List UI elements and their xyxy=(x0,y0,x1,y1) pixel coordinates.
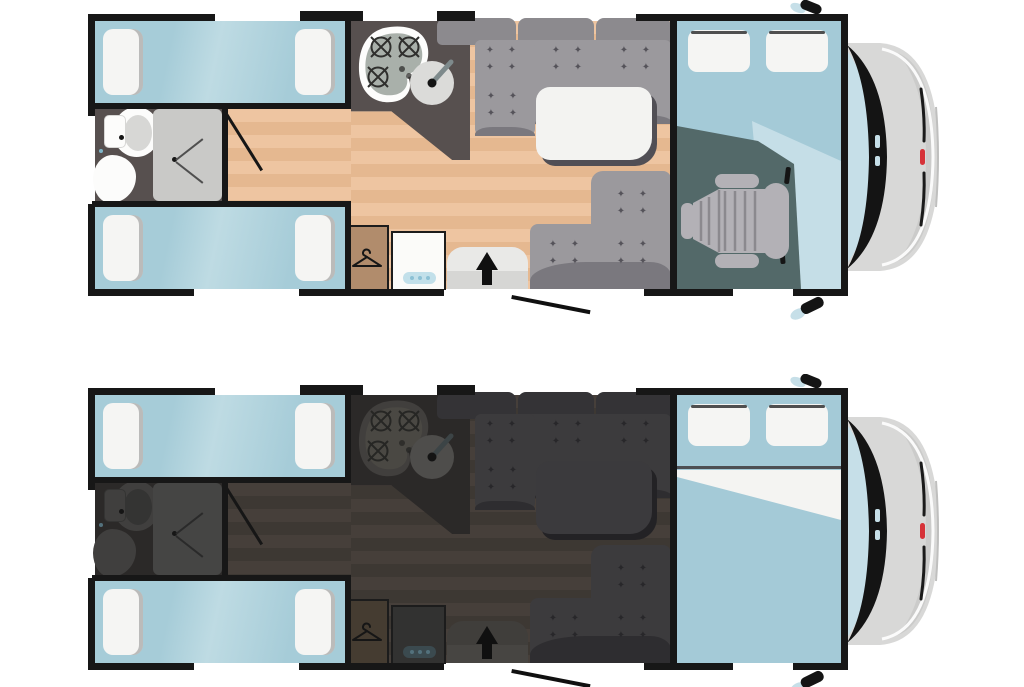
rear-single-bed-bottom xyxy=(95,207,345,289)
pillow xyxy=(103,29,143,95)
bathroom xyxy=(95,483,222,575)
cushion-buttons: ✦✦✦✦ xyxy=(484,90,520,122)
fridge xyxy=(391,231,446,290)
front-badge xyxy=(920,149,925,165)
cushion-buttons: ✦✦✦✦ xyxy=(617,44,653,76)
cushion-buttons: ✦✦✦✦ xyxy=(614,612,650,644)
shower-tray xyxy=(153,109,222,201)
pillow xyxy=(688,30,750,72)
wall-segment xyxy=(88,388,215,395)
hanger-icon xyxy=(350,622,384,644)
front-badge xyxy=(920,523,925,539)
pillow xyxy=(766,404,828,446)
sofa-front-edge xyxy=(475,501,535,510)
wall-segment xyxy=(299,663,444,670)
wall-segment xyxy=(299,289,444,296)
cushion-buttons: ✦✦✦✦ xyxy=(614,188,650,220)
window-gap xyxy=(733,289,793,296)
shower-door-line xyxy=(175,138,203,161)
pillow xyxy=(103,215,143,281)
cushion-buttons: ✦✦✦✦ xyxy=(614,562,650,594)
shower-door-line xyxy=(175,535,203,558)
pillow xyxy=(766,30,828,72)
cab-and-drop-down-bed xyxy=(670,14,848,296)
pillow xyxy=(103,589,143,655)
floorplan-day: ✦✦✦✦ ✦✦✦✦ ✦✦✦✦ ✦✦✦✦ ✦✦✦✦ ✦✦✦✦ ✦✦✦✦ xyxy=(0,0,1024,340)
cushion-buttons: ✦✦✦✦ xyxy=(546,238,582,270)
vehicle-front xyxy=(846,411,946,651)
pillow xyxy=(295,215,335,281)
wall-segment xyxy=(345,16,351,109)
habitation-door-open xyxy=(511,669,590,687)
wall-segment xyxy=(88,14,95,116)
cushion-buttons: ✦✦✦✦ xyxy=(483,418,519,450)
wiper-notch xyxy=(875,156,880,166)
wall-segment xyxy=(222,109,228,206)
cushion-button-icon: ✦ xyxy=(483,418,497,433)
wall-segment xyxy=(88,388,95,490)
rear-single-bed-top xyxy=(95,21,345,103)
pillow xyxy=(295,29,335,95)
basin-drain xyxy=(119,135,124,140)
vehicle-front xyxy=(846,37,946,277)
tap-dot xyxy=(99,523,103,527)
rear-single-bed-bottom xyxy=(95,581,345,663)
wiper-notch xyxy=(875,135,880,148)
toilet-tank xyxy=(104,489,126,522)
wall-segment xyxy=(345,390,351,483)
cushion-buttons: ✦✦✦✦ xyxy=(546,612,582,644)
wall-segment xyxy=(345,201,351,296)
bed-head-divider xyxy=(677,466,841,469)
cab-and-drop-down-bed xyxy=(670,388,848,670)
toilet-seat xyxy=(124,489,152,525)
round-sink-icon xyxy=(406,427,462,483)
habitation-door-open xyxy=(511,295,590,314)
wall-segment xyxy=(300,385,363,395)
corridor-floor xyxy=(228,483,351,575)
tap-dot xyxy=(99,149,103,153)
wall-segment xyxy=(437,385,475,395)
wall-segment xyxy=(300,11,363,21)
cushion-button-icon: ✦ xyxy=(483,44,497,59)
washbasin xyxy=(93,155,136,203)
cushion-buttons: ✦✦✦✦ xyxy=(614,238,650,270)
wing-mirror-icon xyxy=(786,292,828,322)
wall-segment xyxy=(345,575,351,670)
fridge xyxy=(391,605,446,664)
toilet-tank xyxy=(104,115,126,148)
pillow xyxy=(688,404,750,446)
hanger-icon xyxy=(350,248,384,270)
toilet-seat xyxy=(124,115,152,151)
cushion-buttons: ✦✦✦✦ xyxy=(549,44,585,76)
wall-segment xyxy=(88,663,194,670)
dinette-table xyxy=(536,87,652,160)
cushion-buttons: ✦✦✦✦ xyxy=(484,464,520,496)
corridor-floor xyxy=(228,109,351,201)
shower-door-line xyxy=(175,512,203,535)
pillow xyxy=(295,403,335,469)
entry-arrow-icon xyxy=(482,268,492,285)
wall-segment xyxy=(88,14,215,21)
cushion-buttons: ✦✦✦✦ xyxy=(549,418,585,450)
floorplan-night: ✦✦✦✦ ✦✦✦✦ ✦✦✦✦ ✦✦✦✦ ✦✦✦✦ ✦✦✦✦ ✦✦✦✦ xyxy=(0,374,1024,687)
fridge-handle xyxy=(403,272,436,284)
sofa-front-edge xyxy=(475,127,535,136)
pillow xyxy=(103,403,143,469)
wall-segment xyxy=(88,578,95,670)
window-gap xyxy=(733,663,793,670)
shower-tray xyxy=(153,483,222,575)
floorplan-canvas: ✦✦✦✦ ✦✦✦✦ ✦✦✦✦ ✦✦✦✦ ✦✦✦✦ ✦✦✦✦ ✦✦✦✦ xyxy=(0,0,1024,687)
wardrobe xyxy=(345,225,389,290)
basin-drain xyxy=(119,509,124,514)
wiper-notch xyxy=(875,530,880,540)
cushion-buttons: ✦✦✦✦ xyxy=(617,418,653,450)
pillow xyxy=(295,589,335,655)
round-sink-icon xyxy=(406,53,462,109)
dinette-table xyxy=(536,461,652,534)
cab-seat-icon xyxy=(679,173,791,269)
washbasin xyxy=(93,529,136,577)
fridge-handle xyxy=(403,646,436,658)
rear-single-bed-top xyxy=(95,395,345,477)
wall-segment xyxy=(88,289,194,296)
wall-segment xyxy=(437,11,475,21)
entry-arrow-icon xyxy=(482,642,492,659)
wiper-notch xyxy=(875,509,880,522)
wardrobe xyxy=(345,599,389,664)
shower-door-line xyxy=(175,161,203,184)
wall-segment xyxy=(222,483,228,580)
wall-segment xyxy=(88,204,95,296)
bathroom xyxy=(95,109,222,201)
cushion-buttons: ✦✦✦✦ xyxy=(483,44,519,76)
